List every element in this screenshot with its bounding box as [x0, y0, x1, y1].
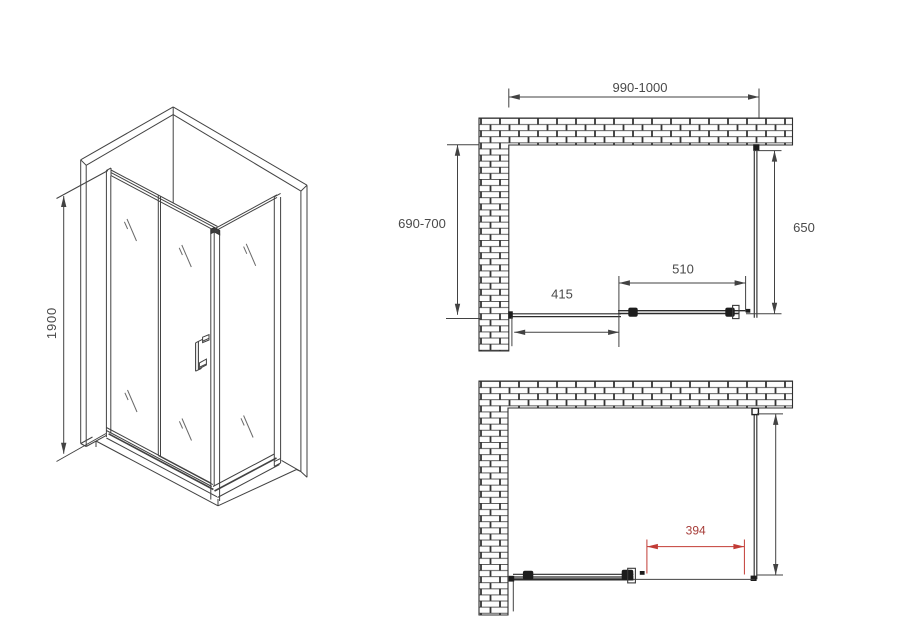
svg-text:690-700: 690-700	[398, 216, 446, 231]
svg-text:394: 394	[686, 524, 706, 538]
svg-text:415: 415	[551, 287, 573, 302]
svg-text:510: 510	[672, 262, 694, 277]
svg-text:650: 650	[793, 220, 815, 235]
svg-text:1900: 1900	[44, 307, 59, 339]
svg-text:990-1000: 990-1000	[613, 80, 668, 95]
